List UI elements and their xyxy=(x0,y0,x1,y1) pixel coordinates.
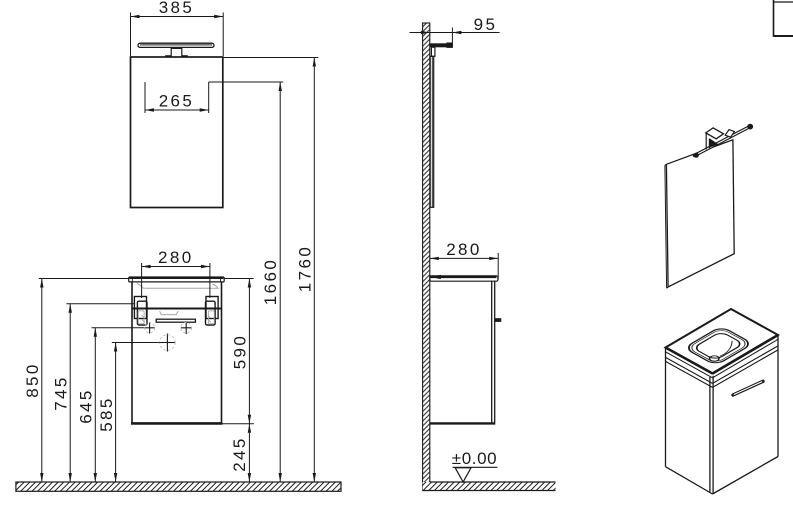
svg-text:280: 280 xyxy=(446,240,482,259)
svg-text:±0.00: ±0.00 xyxy=(452,449,497,468)
svg-text:280: 280 xyxy=(158,248,194,267)
svg-text:645: 645 xyxy=(77,388,96,424)
svg-text:95: 95 xyxy=(474,15,498,34)
svg-text:265: 265 xyxy=(159,92,195,111)
svg-text:745: 745 xyxy=(52,375,71,411)
svg-text:1660: 1660 xyxy=(261,258,280,305)
svg-text:590: 590 xyxy=(231,334,250,370)
svg-text:245: 245 xyxy=(230,436,249,472)
svg-text:385: 385 xyxy=(159,0,195,17)
svg-text:585: 585 xyxy=(97,396,116,432)
svg-text:1760: 1760 xyxy=(295,245,314,292)
svg-text:850: 850 xyxy=(23,362,42,398)
